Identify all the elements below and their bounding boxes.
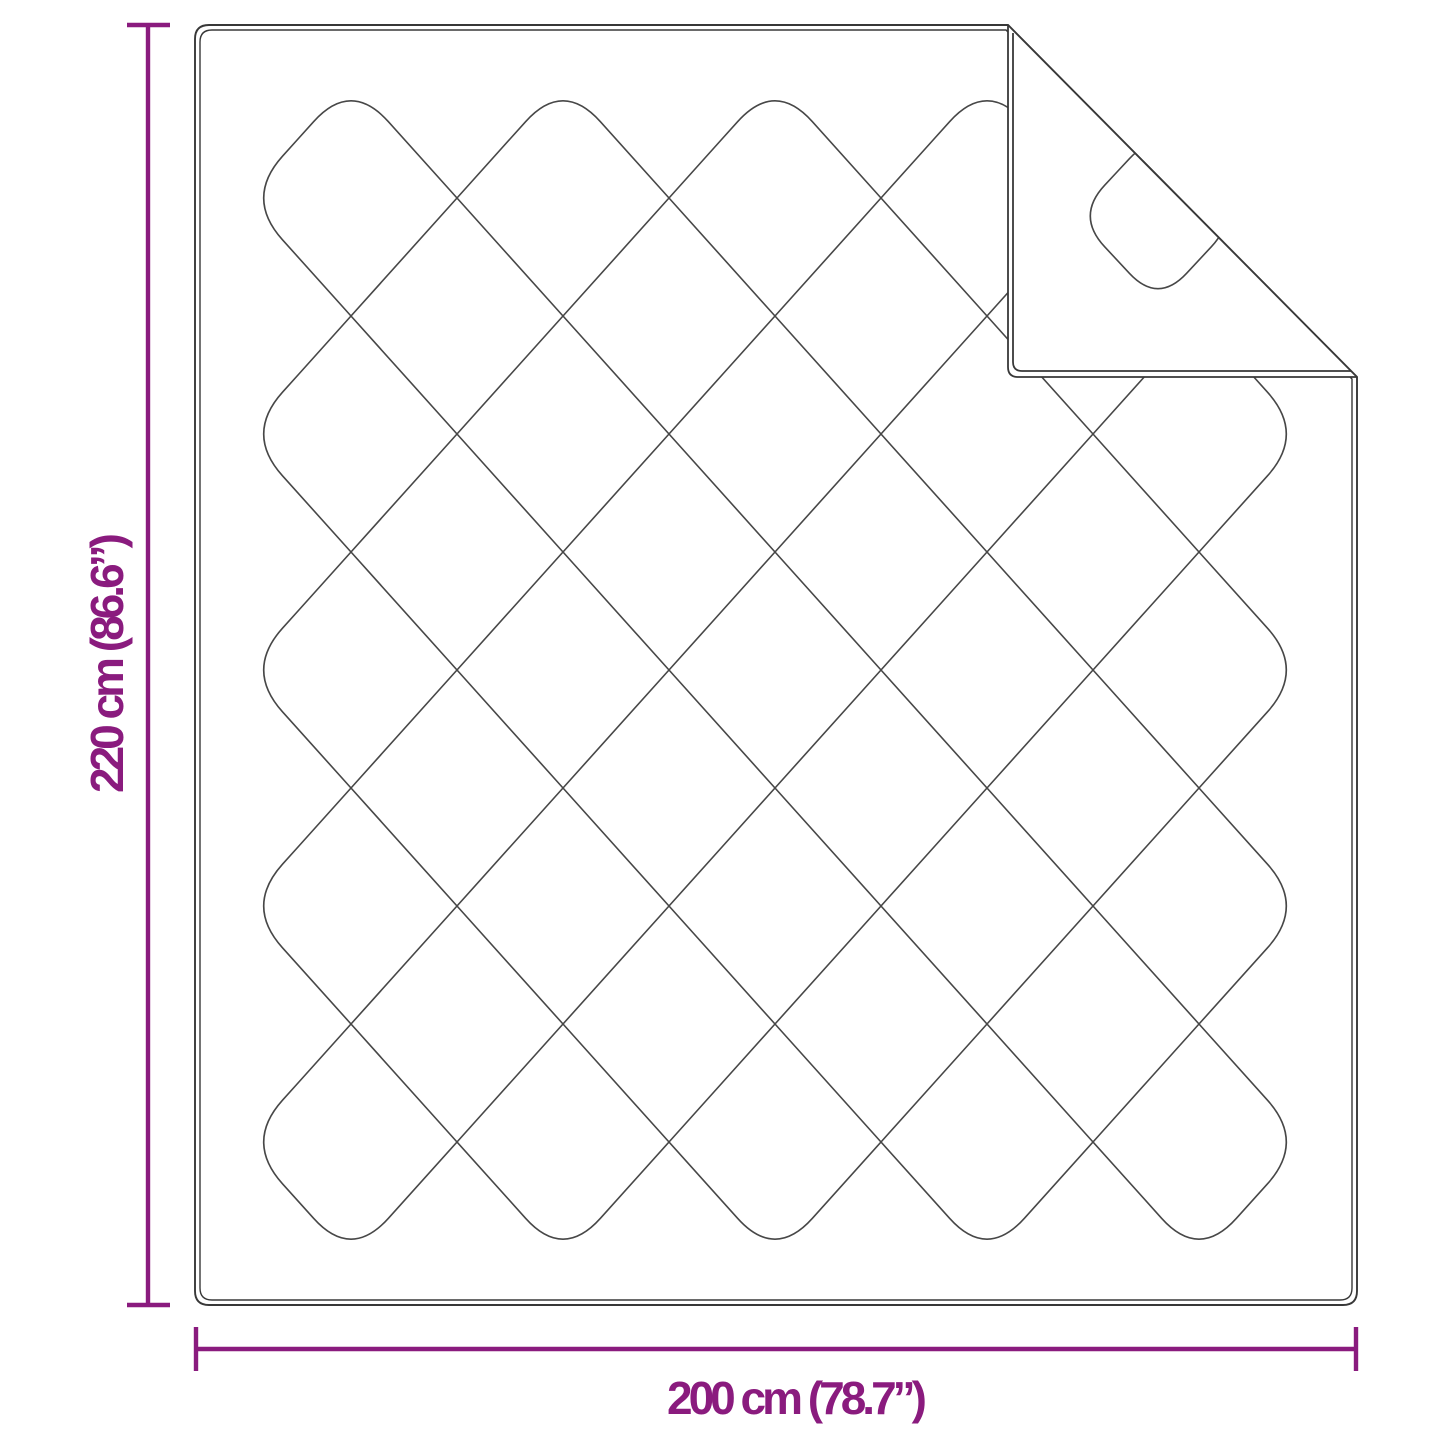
quilt-cell bbox=[264, 552, 457, 788]
height-dimension-label: 220 cm (86.6”) bbox=[80, 537, 134, 793]
quilt-cell bbox=[264, 316, 457, 552]
quilt-cell bbox=[881, 1024, 1093, 1239]
quilt-cell bbox=[457, 101, 669, 316]
quilt-cell bbox=[669, 316, 881, 552]
quilt-cell bbox=[457, 788, 669, 1024]
quilt-cell bbox=[1093, 1024, 1286, 1239]
diagram-canvas bbox=[0, 0, 1445, 1445]
quilt-cell bbox=[457, 316, 669, 552]
blanket-dimension-diagram: 220 cm (86.6”) 200 cm (78.7”) bbox=[0, 0, 1445, 1445]
quilt-cell bbox=[669, 1024, 881, 1239]
quilt-cell bbox=[264, 101, 457, 316]
width-dimension-label: 200 cm (78.7”) bbox=[667, 1371, 923, 1425]
quilt-cell bbox=[881, 788, 1093, 1024]
quilt-cell bbox=[457, 552, 669, 788]
folded-corner-flap bbox=[1008, 25, 1357, 377]
quilt-cell bbox=[1093, 552, 1286, 788]
quilt-cell bbox=[264, 1024, 457, 1239]
quilt-cell bbox=[669, 788, 881, 1024]
quilt-cell bbox=[881, 552, 1093, 788]
quilt-cell bbox=[669, 101, 881, 316]
quilt-cell bbox=[1093, 788, 1286, 1024]
quilt-cell bbox=[264, 788, 457, 1024]
quilt-cell bbox=[669, 552, 881, 788]
quilt-cell bbox=[457, 1024, 669, 1239]
horizontal-dimension-line bbox=[196, 1327, 1356, 1371]
